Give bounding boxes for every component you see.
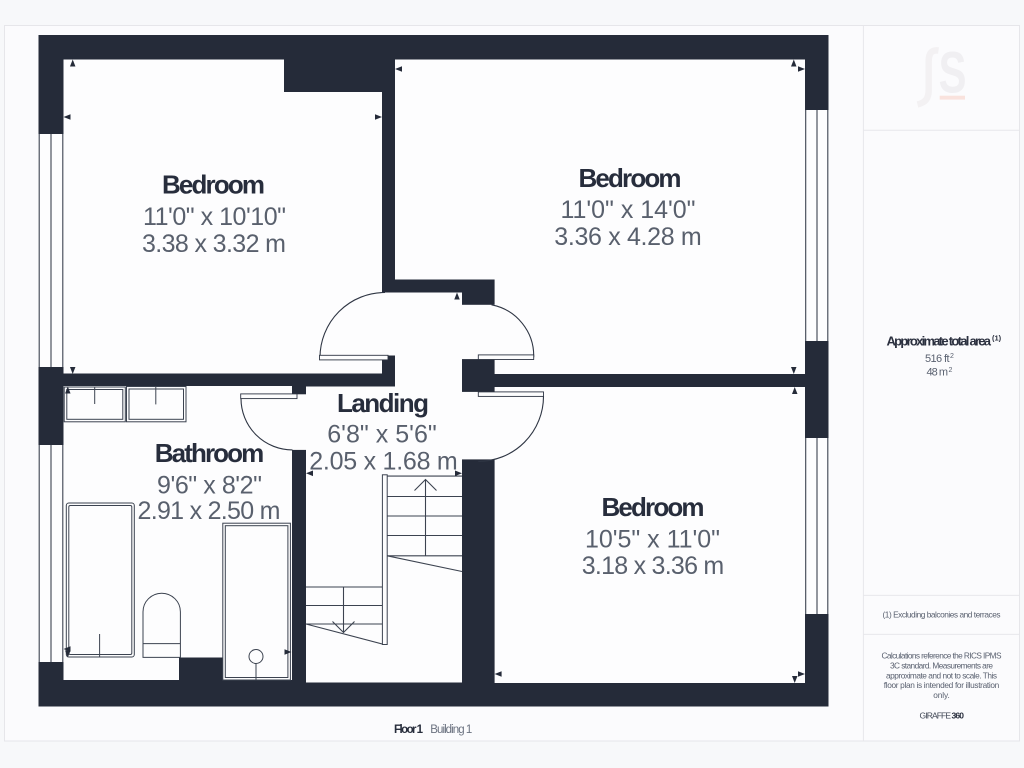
svg-text:(1) Excluding balconies and te: (1) Excluding balconies and terraces bbox=[883, 610, 1001, 620]
svg-text:only.: only. bbox=[933, 690, 950, 700]
svg-text:S: S bbox=[939, 40, 967, 105]
svg-text:Bedroom: Bedroom bbox=[162, 170, 265, 200]
svg-text:Bedroom: Bedroom bbox=[579, 163, 682, 193]
svg-text:2.91 x 2.50 m: 2.91 x 2.50 m bbox=[138, 497, 281, 525]
svg-text:floor plan is intended for ill: floor plan is intended for illustration bbox=[884, 680, 1000, 690]
svg-text:11'0" x 10'10": 11'0" x 10'10" bbox=[143, 203, 286, 231]
svg-text:3.38 x 3.32 m: 3.38 x 3.32 m bbox=[142, 230, 286, 258]
svg-text:6'8" x 5'6": 6'8" x 5'6" bbox=[327, 421, 437, 449]
svg-text:Calculations reference the RIC: Calculations reference the RICS IPMS bbox=[882, 651, 1002, 661]
svg-text:3.18 x 3.36 m: 3.18 x 3.36 m bbox=[582, 552, 725, 580]
svg-text:9'6" x 8'2": 9'6" x 8'2" bbox=[157, 472, 262, 500]
svg-text:2: 2 bbox=[950, 353, 954, 360]
svg-text:2: 2 bbox=[949, 367, 953, 374]
svg-text:(1): (1) bbox=[992, 334, 1002, 343]
svg-text:360: 360 bbox=[952, 711, 965, 721]
svg-text:Bathroom: Bathroom bbox=[155, 438, 265, 468]
svg-text:GIRAFFE: GIRAFFE bbox=[920, 711, 952, 721]
svg-text:10'5" x 11'0": 10'5" x 11'0" bbox=[585, 526, 720, 554]
svg-text:48 m: 48 m bbox=[927, 367, 949, 379]
svg-text:Approximate total area: Approximate total area bbox=[887, 334, 992, 349]
svg-text:516 ft: 516 ft bbox=[925, 353, 950, 365]
svg-text:Floor 1: Floor 1 bbox=[394, 724, 424, 736]
svg-text:2.05 x 1.68 m: 2.05 x 1.68 m bbox=[309, 448, 458, 476]
svg-text:Building 1: Building 1 bbox=[430, 724, 472, 736]
svg-text:Bedroom: Bedroom bbox=[602, 492, 705, 522]
svg-text:Landing: Landing bbox=[337, 388, 429, 418]
svg-text:3.36 x 4.28 m: 3.36 x 4.28 m bbox=[554, 223, 702, 251]
svg-text:3C standard. Measurements are: 3C standard. Measurements are bbox=[890, 660, 993, 670]
svg-text:approximate and not to scale.: approximate and not to scale. This bbox=[886, 670, 997, 680]
svg-text:11'0" x 14'0": 11'0" x 14'0" bbox=[561, 196, 696, 224]
